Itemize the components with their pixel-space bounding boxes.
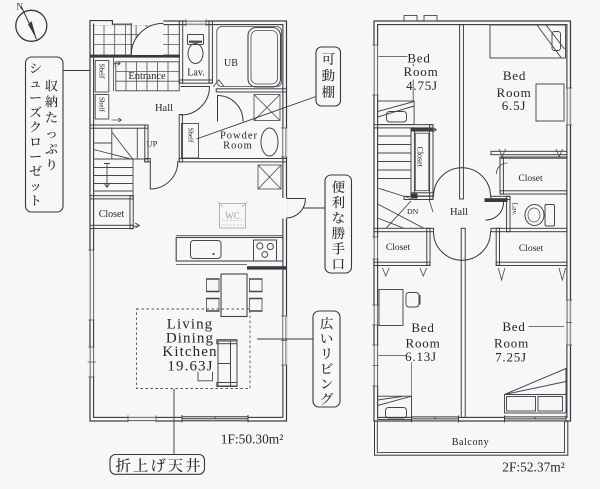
svg-text:Shelf: Shelf [98, 97, 106, 112]
svg-text:WC: WC [225, 211, 240, 221]
svg-text:Bed: Bed [503, 68, 526, 83]
svg-text:1F:50.30m²: 1F:50.30m² [221, 432, 283, 447]
svg-text:Room: Room [404, 64, 439, 79]
svg-text:Closet: Closet [99, 209, 125, 220]
svg-text:Lav.: Lav. [187, 68, 204, 79]
svg-text:6.13J: 6.13J [405, 349, 437, 364]
svg-text:UB: UB [224, 58, 238, 69]
svg-text:Shelf: Shelf [98, 64, 106, 79]
svg-text:6.5J: 6.5J [502, 98, 527, 113]
svg-text:Shelf: Shelf [187, 128, 195, 143]
svg-text:7.25J: 7.25J [495, 350, 527, 365]
svg-text:Lav.: Lav. [511, 203, 520, 216]
svg-text:UP: UP [147, 139, 158, 149]
svg-text:2F:52.37m²: 2F:52.37m² [502, 460, 564, 475]
svg-text:Closet: Closet [386, 243, 411, 253]
svg-text:DN: DN [407, 207, 419, 216]
svg-text:Closet: Closet [416, 147, 425, 168]
svg-text:Balcony: Balcony [452, 437, 490, 448]
svg-text:Hall: Hall [155, 103, 173, 114]
svg-text:Bed: Bed [411, 320, 434, 335]
svg-text:Hall: Hall [450, 207, 468, 218]
svg-text:Room: Room [223, 141, 253, 152]
svg-text:N: N [17, 2, 24, 12]
svg-text:Bed: Bed [502, 319, 525, 334]
svg-text:Closet: Closet [518, 174, 543, 184]
svg-text:4.75J: 4.75J [406, 78, 438, 93]
svg-text:Closet: Closet [519, 244, 544, 254]
svg-text:19.63J: 19.63J [167, 359, 213, 375]
svg-text:Entrance: Entrance [128, 71, 166, 82]
svg-text:Room: Room [494, 336, 529, 351]
